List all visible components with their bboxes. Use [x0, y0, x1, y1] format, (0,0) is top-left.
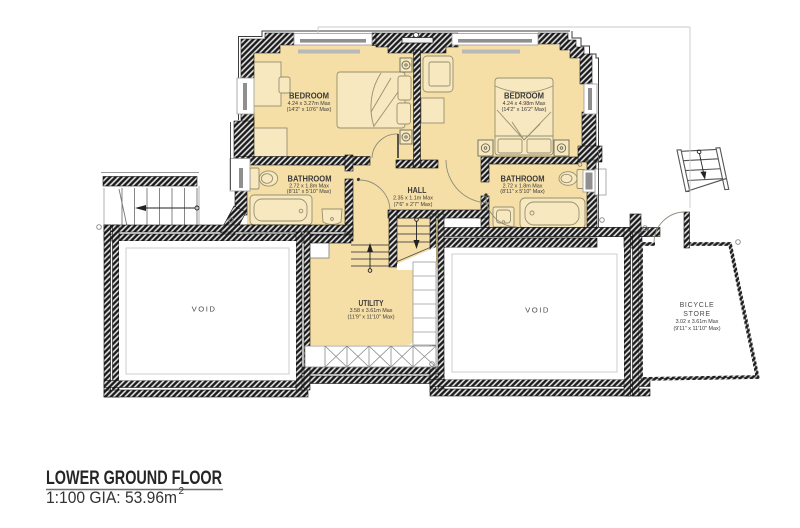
svg-text:1:100 GIA: 53.96m: 1:100 GIA: 53.96m	[46, 488, 177, 507]
svg-text:BICYCLE: BICYCLE	[680, 302, 715, 309]
svg-text:BATHROOM: BATHROOM	[288, 175, 332, 184]
svg-text:(7'6" x 2'7" Max): (7'6" x 2'7" Max)	[394, 202, 433, 208]
svg-text:2.35 x 1.1m Max: 2.35 x 1.1m Max	[393, 196, 433, 202]
svg-text:STORE: STORE	[683, 311, 711, 318]
svg-text:VOID: VOID	[525, 306, 550, 315]
svg-text:LOWER GROUND FLOOR: LOWER GROUND FLOOR	[46, 468, 222, 489]
svg-text:HALL: HALL	[408, 186, 427, 195]
svg-text:(8'11" x 5'10" Max): (8'11" x 5'10" Max)	[287, 189, 332, 195]
svg-text:(11'9" x 11'10" Max): (11'9" x 11'10" Max)	[347, 315, 394, 321]
svg-text:3.02 x 3.61m Max: 3.02 x 3.61m Max	[676, 319, 719, 325]
svg-text:(9'11" x 11'10" Max): (9'11" x 11'10" Max)	[673, 326, 720, 332]
svg-text:BEDROOM: BEDROOM	[504, 92, 544, 101]
svg-text:BEDROOM: BEDROOM	[289, 92, 329, 101]
svg-text:(8'11" x 5'10" Max): (8'11" x 5'10" Max)	[500, 189, 545, 195]
svg-text:(14'2" x 10'6" Max): (14'2" x 10'6" Max)	[287, 107, 332, 113]
svg-text:3.58 x 3.61m Max: 3.58 x 3.61m Max	[350, 308, 393, 314]
svg-text:BATHROOM: BATHROOM	[501, 175, 545, 184]
svg-text:VOID: VOID	[192, 305, 217, 314]
svg-text:2: 2	[179, 486, 185, 497]
svg-text:(14'2" x 16'2" Max): (14'2" x 16'2" Max)	[502, 107, 547, 113]
svg-text:UTILITY: UTILITY	[359, 299, 385, 308]
